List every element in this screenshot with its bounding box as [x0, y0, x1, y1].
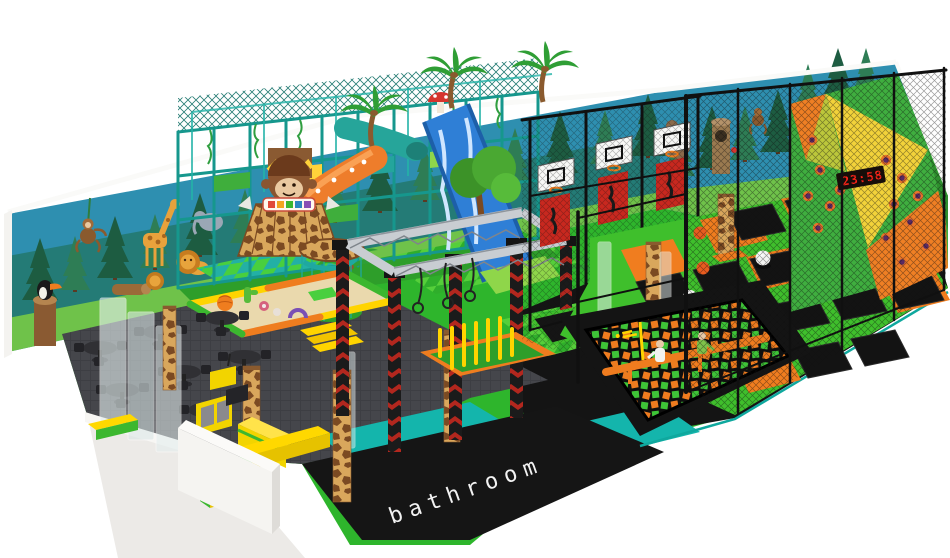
monkey-hut-sign	[263, 198, 315, 211]
giraffe-column	[163, 306, 176, 390]
giraffe-column	[646, 242, 661, 300]
net-mesh	[686, 70, 946, 415]
wall-left-edge	[4, 210, 12, 358]
playground-render: 23:58 bathroom	[0, 0, 950, 558]
playground-scene: 23:58 bathroom	[0, 0, 950, 558]
net-fence	[686, 68, 946, 415]
